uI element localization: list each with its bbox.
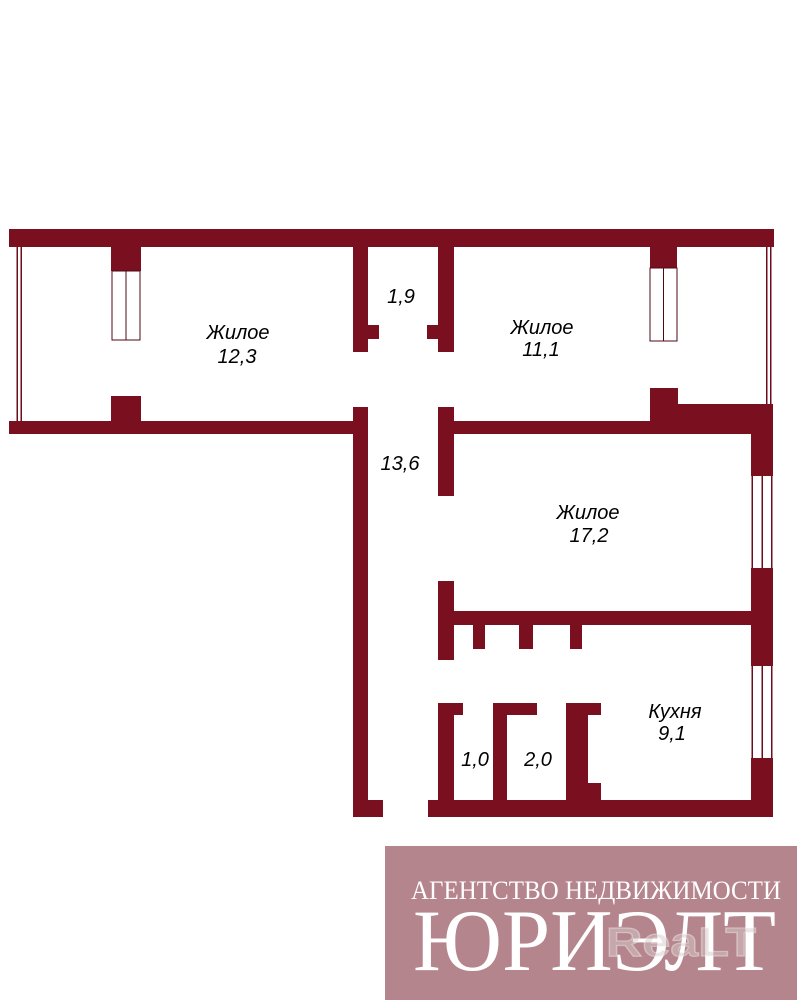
svg-text:2,0: 2,0 xyxy=(523,749,552,771)
svg-text:12,3: 12,3 xyxy=(218,346,257,368)
svg-text:1,0: 1,0 xyxy=(461,749,489,771)
svg-text:9,1: 9,1 xyxy=(658,723,686,745)
svg-text:Жилое: Жилое xyxy=(510,317,574,339)
svg-text:11,1: 11,1 xyxy=(522,339,559,361)
svg-text:Жилое: Жилое xyxy=(206,322,270,344)
svg-text:13,6: 13,6 xyxy=(381,453,421,475)
svg-text:17,2: 17,2 xyxy=(570,525,609,547)
svg-text:ReaLT: ReaLT xyxy=(606,919,756,965)
svg-text:Кухня: Кухня xyxy=(648,701,702,723)
svg-text:1,9: 1,9 xyxy=(387,286,415,308)
svg-text:Жилое: Жилое xyxy=(556,502,620,524)
